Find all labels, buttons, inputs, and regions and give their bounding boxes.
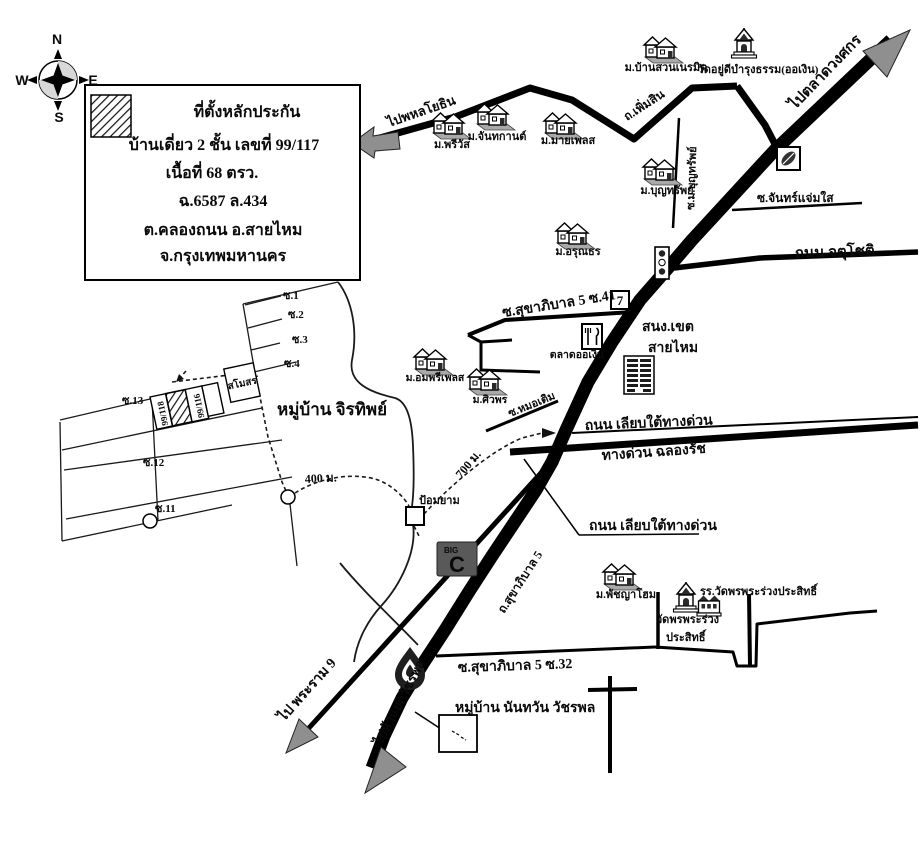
- road-soi41: [468, 312, 633, 335]
- traffic-light-icon: [655, 247, 669, 279]
- soi12-line: [64, 440, 282, 470]
- label-400m: 400 ม.: [304, 470, 337, 486]
- road-soi32: [436, 647, 655, 656]
- house-icon: [476, 104, 515, 130]
- road-phoem-sin: [737, 86, 777, 148]
- label-wat-line2: ประสิทธิ์: [666, 629, 707, 644]
- market-icon: [582, 324, 602, 349]
- seven-glyph: 7: [617, 293, 624, 308]
- house-icon: [414, 349, 453, 375]
- legend-box: ที่ตั้งหลักประกัน บ้านเดี่ยว 2 ชั้น เลขท…: [85, 85, 360, 280]
- road-soi41-block: [481, 340, 512, 342]
- label-bunsap: ม.บุญทรัพย์: [640, 184, 693, 198]
- label-700m: 700 ม.: [453, 447, 484, 480]
- label-chanthakan: ม.จันทกานต์: [468, 130, 527, 143]
- label-soi12: ซ.12: [143, 457, 165, 469]
- label-guard-post: ป้อมยาม: [419, 494, 460, 507]
- house-icon: [432, 113, 471, 139]
- house-icon: [644, 37, 683, 63]
- district-office-icon: [624, 356, 654, 394]
- dashed-below-guardpost: [414, 526, 420, 538]
- label-previs: ม.พรีวัส: [434, 138, 470, 151]
- label-soi13: ซ.13: [122, 395, 144, 407]
- temple-icon: [674, 582, 699, 612]
- label-wat-line1: วัดพรพระร่วง: [656, 613, 719, 626]
- label-soi3: ซ.3: [292, 334, 308, 346]
- legend-province-line: จ.กรุงเทพมหานคร: [160, 248, 287, 266]
- collateral-location-map: 99/118 99/116 สโมสร N S W E ที่ตั้งหลักป…: [0, 0, 920, 849]
- label-wat-yudi: วัดอยู่ดีบำรุงธรรม(ออเงิน): [698, 63, 819, 77]
- junction-curve: [340, 563, 418, 645]
- label-chan-chaem-sai: ซ.จันทร์แจ่มใส: [757, 190, 834, 205]
- school-icon: [697, 596, 721, 617]
- compass-s-label: S: [54, 109, 63, 125]
- label-arunthon: ม.อรุณธร: [555, 246, 600, 259]
- bigc-icon: BIG C: [437, 542, 477, 577]
- guard-post-box: [406, 507, 424, 525]
- road-cross-horizontal: [588, 689, 637, 690]
- legend-district-line: ต.คลองถนน อ.สายไหม: [144, 220, 303, 239]
- village-access-road: [338, 282, 414, 506]
- plot-row: 99/118 99/116 สโมสร: [148, 363, 263, 430]
- junction-node-400m: [281, 490, 295, 504]
- label-liap-tai-1: ถนน เลียบใต้ทางด่วน: [584, 410, 713, 434]
- label-siwaphon: ม.ศิวพร: [473, 394, 508, 406]
- label-soi2: ซ.2: [288, 309, 304, 321]
- village-left-edge: [60, 422, 62, 541]
- soi2-line: [248, 319, 282, 328]
- label-soi4: ซ.4: [284, 358, 300, 370]
- label-amphri-place: ม.อมพรีเพลส: [406, 371, 465, 384]
- label-to-rama9: ไป พระราม 9: [272, 654, 339, 726]
- compass-n-label: N: [52, 31, 62, 47]
- node-south-line: [290, 504, 297, 566]
- label-soi11: ซ.11: [155, 503, 176, 515]
- legend-deed-line: ฉ.6587 ล.434: [179, 193, 268, 210]
- bigc-big-text: C: [449, 552, 465, 577]
- label-soi32: ซ.สุขาภิบาล 5 ซ.32: [458, 656, 573, 676]
- label-phatchaya-home: ม.พัชญาโฮม: [596, 587, 656, 601]
- label-myplace: ม.มายเพลส: [541, 135, 596, 147]
- route-arrowhead: [542, 428, 556, 438]
- road-soi-mu-bunsap: [673, 118, 679, 228]
- label-jirathip: หมู่บ้าน จิรทิพย์: [277, 399, 387, 421]
- house-icon: [603, 564, 642, 590]
- junction-node-soi11: [143, 514, 157, 528]
- road-school-branch: [749, 594, 750, 665]
- compass-w-label: W: [15, 72, 29, 88]
- jirathip-plot-grid: [60, 282, 338, 566]
- compass: [27, 49, 89, 111]
- temple-icon: [732, 28, 757, 58]
- label-sukhaphiban5: ถ.สุขาภิบาล 5: [495, 548, 546, 616]
- callout-underline: [579, 534, 699, 535]
- label-bansuan-neramit: ม.บ้านสวนเนรมิต: [625, 61, 708, 74]
- legend-hatch-swatch: [91, 95, 131, 137]
- map-svg: 99/118 99/116 สโมสร N S W E ที่ตั้งหลักป…: [0, 0, 920, 849]
- label-chatuchot: ถนน จตุโชติ: [794, 240, 875, 263]
- label-talat-o-ngoen: ตลาดออเงิน: [550, 349, 605, 361]
- house-icon: [468, 369, 507, 395]
- label-school: รร.วัดพรพระร่วงประสิทธิ์: [700, 583, 819, 598]
- label-district-office-1: สนง.เขต: [642, 320, 694, 335]
- dashed-village-boundary: [255, 372, 286, 491]
- soi11-line: [66, 477, 292, 519]
- guardpost-south-curve: [354, 524, 414, 662]
- nanthawan-callout: [415, 712, 441, 729]
- label-liap-tai-2: ถนน เลียบใต้ทางด่วน: [589, 516, 717, 534]
- soi3-line: [251, 343, 280, 350]
- label-soi1: ซ.1: [283, 290, 299, 302]
- nanthawan-box: [439, 715, 477, 752]
- label-nanthawan: หมู่บ้าน นันทวัน วัชรพล: [455, 700, 595, 716]
- lotus-store-icon: [777, 147, 800, 170]
- soi1-line: [245, 296, 281, 305]
- compass-north-pointer: [54, 49, 62, 59]
- curvy-access-roads: [338, 282, 418, 662]
- label-soi-mu-bunsap: ซ.ม.บุญทรัพย์: [684, 146, 700, 210]
- label-district-office-2: สายไหม: [648, 338, 698, 356]
